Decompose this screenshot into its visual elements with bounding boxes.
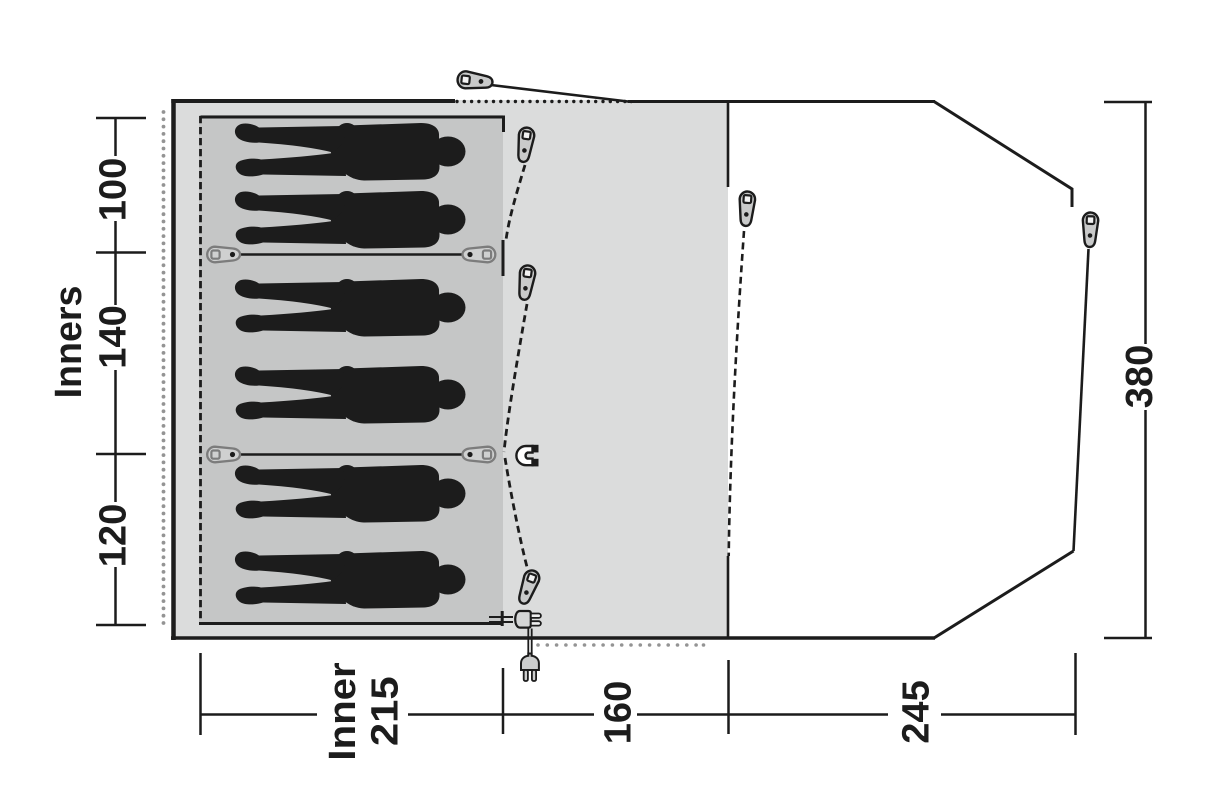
svg-text:Inners: Inners bbox=[48, 286, 90, 399]
svg-text:140: 140 bbox=[93, 305, 135, 368]
svg-text:120: 120 bbox=[93, 504, 135, 567]
svg-text:215: 215 bbox=[364, 676, 406, 746]
svg-text:245: 245 bbox=[896, 680, 938, 743]
svg-text:160: 160 bbox=[598, 681, 640, 744]
svg-text:100: 100 bbox=[93, 158, 135, 221]
svg-text:Inner: Inner bbox=[322, 662, 364, 760]
svg-text:380: 380 bbox=[1119, 345, 1161, 408]
